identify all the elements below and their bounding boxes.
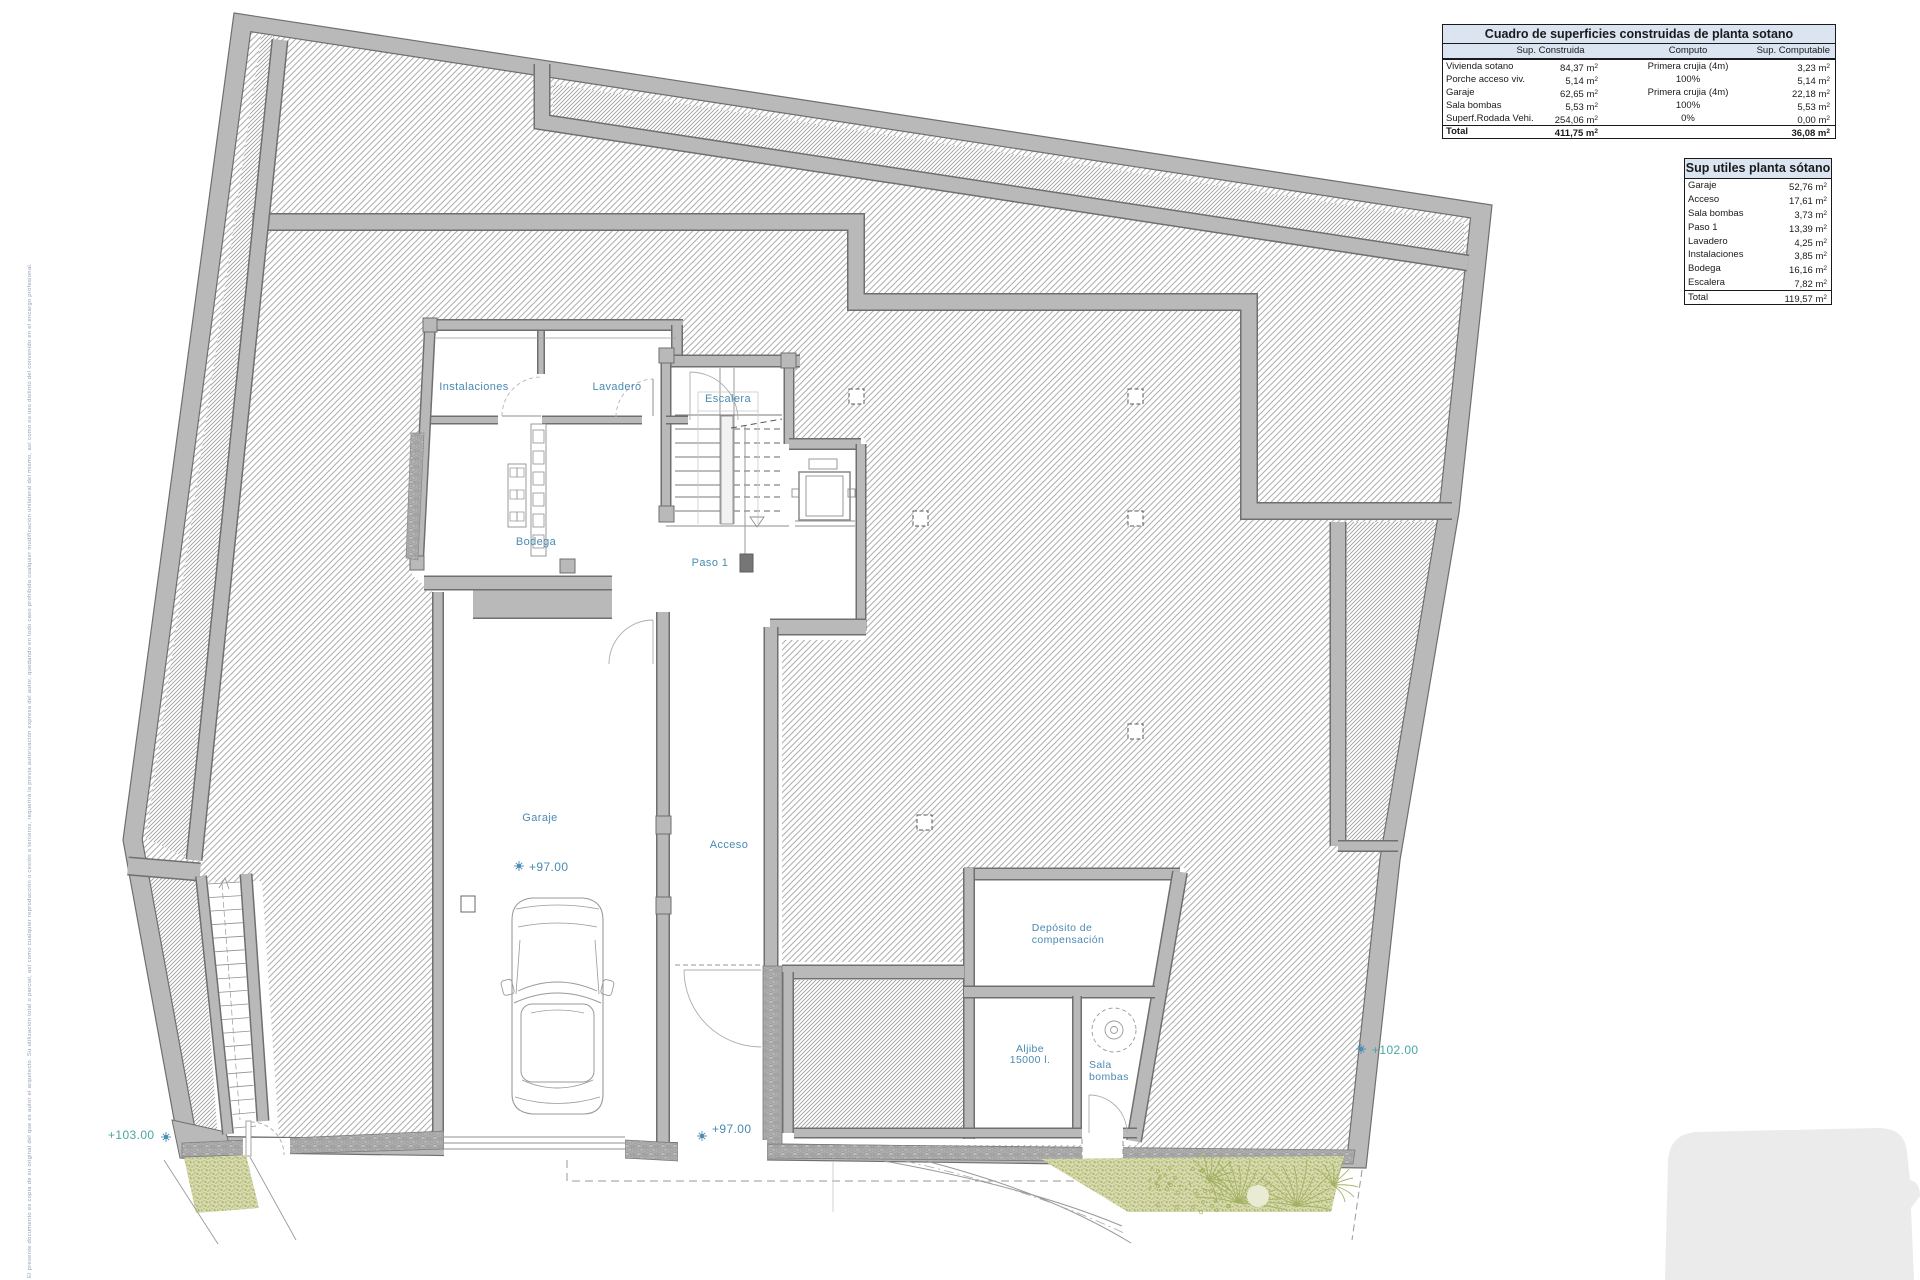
svg-text:Paso 1: Paso 1: [692, 557, 729, 569]
svg-text:Bodega: Bodega: [516, 536, 557, 548]
svg-text:El presente documento es copia: El presente documento es copia de su ori…: [27, 263, 33, 1278]
svg-text:bombas: bombas: [1089, 1071, 1129, 1083]
svg-text:+102.00: +102.00: [1372, 1043, 1419, 1057]
svg-text:+103.00: +103.00: [108, 1128, 155, 1142]
svg-text:Garaje: Garaje: [522, 812, 557, 824]
svg-text:Instalaciones: Instalaciones: [439, 381, 509, 393]
svg-text:Lavadero: Lavadero: [592, 381, 641, 393]
svg-text:Escalera: Escalera: [705, 393, 751, 405]
svg-text:Sala: Sala: [1089, 1059, 1112, 1071]
svg-text:Acceso: Acceso: [710, 839, 748, 851]
svg-text:compensación: compensación: [1032, 934, 1105, 946]
svg-text:Depósito de: Depósito de: [1032, 922, 1092, 934]
svg-text:15000 l.: 15000 l.: [1010, 1054, 1051, 1066]
svg-text:+97.00: +97.00: [529, 860, 568, 874]
svg-text:+97.00: +97.00: [712, 1122, 751, 1136]
